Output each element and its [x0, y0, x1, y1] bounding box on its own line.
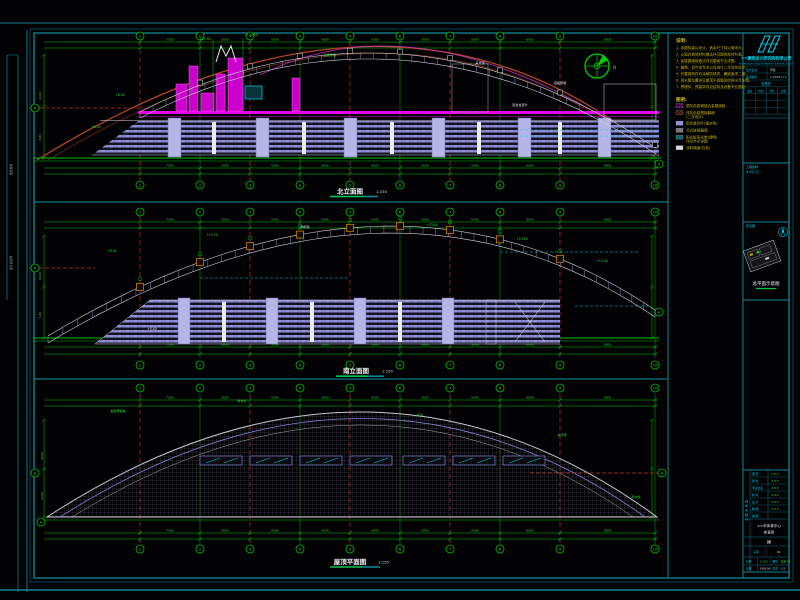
edge-label-1: 图纸目录	[9, 164, 13, 175]
grid-bubble-label: 9	[559, 183, 561, 187]
dim-text: 5000	[321, 529, 329, 533]
grid-bubble-label: 9	[559, 34, 561, 38]
truss-node-box	[498, 68, 503, 73]
tb-project-name-2: 体育场	[764, 530, 775, 535]
truss-node-box	[497, 236, 504, 243]
elevation-2-scale: 1:150	[382, 369, 394, 374]
grid-bubble-label: 7	[449, 34, 451, 38]
sig-row-label: 描 图	[752, 514, 759, 518]
sig-row-label: 制 图	[752, 507, 759, 511]
legend-label: 点式玻璃幕墙	[686, 128, 708, 133]
title-block: ××建筑设计研究院有限公司 Architectural Design & Res…	[739, 55, 794, 571]
grid-bubble-label: 6	[399, 547, 401, 551]
edge-label-2: 设计总说明	[9, 256, 13, 270]
dim-text: 5000	[321, 38, 329, 42]
grid-bubble-label: 3	[249, 547, 251, 551]
dim-text: 9500	[604, 343, 612, 347]
roof-louver-slot	[200, 456, 242, 465]
annotation-text: +19.80	[516, 237, 527, 241]
annotation-text: +8.50	[115, 93, 125, 97]
legend-label: 银灰色铝镁锰合金屋面板	[686, 103, 726, 108]
annotation-text: 采光带	[557, 432, 566, 437]
annotation-text: 天沟	[417, 412, 423, 417]
annotation-text: +23.00	[246, 33, 257, 37]
grid-bubble-label: 5	[349, 386, 351, 390]
elevation-2-title: 南立面图	[343, 366, 370, 375]
side-dim-text: 5.40	[38, 312, 42, 318]
grid-bubble-label: 10	[653, 547, 657, 551]
grid-bubble-label: 9	[559, 363, 561, 367]
company-name: ××建筑设计研究院有限公司	[741, 55, 792, 61]
roof-equipment	[176, 38, 300, 112]
sign-grid-title: 会签栏	[761, 81, 771, 86]
legend-title: 图例:	[676, 96, 687, 103]
dim-text: 7500	[166, 343, 174, 347]
grid-bubble-label: 7	[449, 210, 451, 214]
grid-bubble-label: 8	[499, 34, 501, 38]
dim-text: 9500	[604, 529, 612, 533]
dim-text: 9500	[604, 38, 612, 42]
grid-bubble-label: 3	[249, 210, 251, 214]
dim-text: 5000	[271, 164, 279, 168]
truss-node-box	[197, 259, 204, 266]
dim-text: 5000	[271, 218, 279, 222]
dim-text: 6000	[526, 396, 534, 400]
roof-plan-art	[40, 412, 660, 520]
dim-text: 5000	[471, 38, 479, 42]
grid-bubble-label: 6	[399, 183, 401, 187]
grid-bubble-label: 7	[449, 547, 451, 551]
dim-text: 5000	[421, 343, 429, 347]
roof-louver-slot	[503, 456, 545, 465]
dim-text: 5000	[371, 38, 379, 42]
cad-drawing-surface: N 11223344556677889910107500750050005000…	[0, 0, 800, 600]
truss-node-box	[298, 53, 303, 58]
grid-bubble-label: 10	[653, 34, 657, 38]
dim-text: 5000	[221, 218, 229, 222]
truss-node-box	[247, 243, 254, 250]
stamp-strip-label: 出图专用章	[744, 498, 749, 521]
truss-node-box	[447, 226, 454, 233]
grid-bubble-label: 9	[559, 547, 561, 551]
dim-text: 5000	[471, 218, 479, 222]
cad-canvas[interactable]: N 11223344556677889910107500750050005000…	[0, 0, 800, 600]
sign-grid-col: 专业	[747, 89, 753, 93]
tb-sub-value: 01	[777, 550, 781, 554]
note-item: 7. 预埋件、预留洞详见结构及设备专业图纸。	[676, 84, 749, 89]
dim-text: 5000	[471, 396, 479, 400]
side-dim-text: 33.00	[40, 452, 44, 460]
legend-swatch	[676, 135, 683, 139]
grid-bubble-label: 6	[399, 210, 401, 214]
legend-swatch	[676, 121, 683, 125]
legend-label: (二次设计)	[686, 114, 704, 119]
elevation-1-title: 北立面图	[337, 187, 364, 196]
truss-node-box	[397, 223, 404, 230]
dim-text: 7500	[166, 38, 174, 42]
sig-row-value: ×××	[771, 500, 779, 504]
dim-text: 6000	[526, 218, 534, 222]
dim-text: 5000	[421, 529, 429, 533]
dim-text: 5000	[271, 343, 279, 347]
truss-node-box	[198, 80, 203, 85]
annotation-text: +9.00	[107, 249, 117, 253]
dim-text: 5000	[371, 396, 379, 400]
sig-row-label: 设 计	[752, 500, 759, 504]
grid-bubble-label: 6	[399, 386, 401, 390]
dim-text: 7500	[166, 529, 174, 533]
grid-bubble-label: 2	[199, 386, 201, 390]
tb-date-value: 2008.06	[760, 567, 771, 571]
roof-louver-slot	[300, 456, 342, 465]
north-compass: N	[585, 54, 616, 78]
tb-stage: 建	[767, 539, 772, 546]
grid-bubble-label: 10	[653, 183, 657, 187]
grid-bubble-label: 10	[653, 386, 657, 390]
grid-bubble-label: 8	[499, 386, 501, 390]
sig-row-value: ×××	[771, 493, 779, 497]
grid-bubble-label: 9	[559, 386, 561, 390]
grid-bubble-label: 10	[653, 363, 657, 367]
grid-bubble-label: 2	[199, 547, 201, 551]
annotation-text: 铝合金百叶	[512, 102, 527, 107]
grid-bubble-label: 3	[249, 386, 251, 390]
roof-louver-slot	[250, 456, 292, 465]
note-item: 6. 雨水管位置详见屋顶平面图及给排水专业图。	[676, 78, 752, 83]
elevation-2-art	[33, 252, 659, 344]
dim-text: 5000	[421, 396, 429, 400]
legend-swatch	[676, 104, 683, 108]
annotation-text: +23.00	[426, 223, 437, 227]
elevation-1-scale: 1:150	[376, 189, 388, 194]
roof-louver-slot	[350, 456, 392, 465]
cert-value: A-2008×××	[770, 75, 787, 79]
grid-bubble-label: 6	[399, 34, 401, 38]
cert-label: 设计证书	[746, 68, 757, 72]
adjacent-sheet-labels: 图纸目录 设计总说明	[9, 164, 13, 270]
legend-label: 铝合金百叶(银灰色)	[686, 121, 718, 126]
annotation-text: +15.20	[206, 233, 217, 237]
roof-louver-slot	[403, 456, 445, 465]
grid-bubble-label: 1	[139, 210, 141, 214]
annotation-text: +6.00	[91, 125, 101, 129]
dim-text: 5000	[321, 164, 329, 168]
side-dim-text: 15.00	[38, 272, 42, 280]
grid-bubble-label: 3	[249, 363, 251, 367]
dim-text: 7500	[166, 164, 174, 168]
dim-text: 6000	[526, 38, 534, 42]
dim-text: 5000	[421, 38, 429, 42]
dim-text: 6000	[526, 164, 534, 168]
annotation-text: 雨水管	[631, 494, 640, 499]
dim-text: 5000	[371, 218, 379, 222]
sig-row-label: 审 定	[752, 472, 759, 476]
tb-number-label: 图号	[773, 560, 779, 564]
grid-bubble-label: 7	[449, 363, 451, 367]
tb-number-value: 建施-03	[781, 560, 791, 564]
annotation-text: +12.00	[596, 259, 607, 263]
sig-row-label: 专业负责	[752, 486, 763, 490]
note-item: 2. 立面外装修材料做法详见图例及材料表。	[676, 52, 745, 57]
dim-text: 9500	[604, 164, 612, 168]
tb-sub-label: 子项	[753, 550, 759, 554]
legend-swatch	[676, 146, 683, 150]
legend-label: 涂料墙面(白色)	[686, 145, 711, 150]
grid-bubble-label: 1	[139, 34, 141, 38]
tb-scale-value: 1:150	[760, 560, 768, 564]
dim-text: 5000	[371, 164, 379, 168]
grid-bubble-label: 5	[349, 34, 351, 38]
annotation-text: 采光带	[475, 60, 484, 65]
side-dim-text: 21.00	[38, 92, 42, 100]
annotation-text: 金属屋面板	[110, 408, 125, 413]
tb-sheet-label: 张次	[773, 567, 779, 571]
dim-text: 5000	[271, 38, 279, 42]
truss-node-box	[398, 49, 403, 54]
dim-text: 5000	[471, 164, 479, 168]
cert-label: 证书编号	[746, 75, 757, 79]
dim-text: 5000	[271, 529, 279, 533]
grid-bubble-label: 7	[449, 183, 451, 187]
compass-label: N	[613, 65, 616, 71]
site-label: 区位图	[746, 223, 755, 228]
side-dim-text: 12.00	[40, 492, 44, 500]
grid-bubble-label: 2	[199, 210, 201, 214]
grid-bubble-label: 2	[199, 363, 201, 367]
dim-text: 5000	[221, 164, 229, 168]
dim-text: 5000	[221, 38, 229, 42]
dim-text: 9500	[604, 218, 612, 222]
dim-text: 5000	[471, 529, 479, 533]
grid-bubble-label: 7	[449, 386, 451, 390]
grid-bubble-label: 1	[139, 183, 141, 187]
louver-band	[95, 300, 560, 344]
roof-plan-scale: 1:150	[378, 560, 390, 565]
truss-node-box	[653, 142, 658, 147]
roof-louver-slot	[453, 456, 495, 465]
grid-bubble-label: 1	[139, 363, 141, 367]
dim-text: 5000	[221, 396, 229, 400]
truss-node-box	[137, 283, 144, 290]
notes-title: 说明:	[676, 37, 687, 44]
company-name-en: Architectural Design & Research Institut…	[739, 63, 794, 66]
grid-bubble-label: 9	[559, 210, 561, 214]
grid-bubble-label: 6	[399, 363, 401, 367]
annotation-text: 屋脊线	[237, 398, 246, 403]
project-sub-label: 体育场工程	[746, 170, 759, 174]
grid-bubble-label: 8	[499, 183, 501, 187]
dim-text: 5000	[471, 343, 479, 347]
dim-text: 5000	[221, 343, 229, 347]
sig-row-value: ×××	[771, 486, 779, 490]
dim-text: 6000	[526, 529, 534, 533]
dim-text: 6000	[526, 343, 534, 347]
sig-row-label: 校 对	[752, 493, 759, 497]
sign-grid-col: 姓名	[758, 89, 764, 93]
cert-value: 甲级	[770, 68, 776, 72]
annotation-text: +5.40	[147, 327, 157, 331]
legend-swatch	[676, 111, 683, 115]
sig-row-value: ×××	[771, 479, 779, 483]
truss-node-box	[558, 90, 563, 95]
dim-text: 5000	[421, 164, 429, 168]
grid-bubble-label: 3	[249, 183, 251, 187]
tb-sheet-value: 1/3	[781, 567, 786, 571]
site-caption: 总平面示意图	[753, 280, 780, 287]
truss-node-box	[348, 48, 353, 53]
dim-text: 5000	[321, 218, 329, 222]
grid-bubble-label: 1	[139, 547, 141, 551]
grid-bubble-label: 5	[349, 547, 351, 551]
grid-bubble-label: 8	[499, 210, 501, 214]
sig-row-label: 审 核	[752, 479, 759, 483]
sign-grid-col: 日期	[781, 89, 787, 93]
magenta-band	[138, 111, 659, 114]
truss-node-box	[248, 64, 253, 69]
site-thumbnail	[743, 240, 781, 272]
truss-node-box	[297, 231, 304, 238]
annotation-text: +21.50	[199, 37, 210, 41]
side-dim-text: 8.40	[38, 134, 42, 140]
dim-text: 5000	[271, 396, 279, 400]
elevation-1-art	[33, 38, 661, 161]
dim-text: 5000	[371, 529, 379, 533]
annotation-text: 铝板幕墙	[554, 80, 566, 85]
note-item: 5. 外露钢构件均涂刷防锈漆、氟碳面漆二度。	[676, 71, 749, 76]
project-label: 工程名称	[746, 164, 758, 169]
tb-date-label: 日期	[746, 567, 752, 571]
dim-text: 5000	[321, 396, 329, 400]
legend-swatch	[676, 128, 683, 132]
grid-bubble-label: 2	[199, 183, 201, 187]
note-item: 3. 金属屋面板做法详见屋面节点详图。	[676, 58, 738, 63]
dim-text: 9500	[604, 396, 612, 400]
firm-logo	[758, 36, 780, 52]
sig-row-value: ×××	[771, 472, 779, 476]
grid-bubble-label: 8	[499, 547, 501, 551]
dim-text: 5000	[421, 218, 429, 222]
grid-bubble-label: 1	[139, 386, 141, 390]
dim-text: 5000	[321, 343, 329, 347]
truss-node-box	[448, 56, 453, 61]
dim-text: 7500	[166, 218, 174, 222]
grid-bubble-label: 8	[499, 363, 501, 367]
legend-label: 详见节点详图	[686, 139, 708, 144]
dim-text: 5000	[371, 343, 379, 347]
grid-bubble-label: 5	[349, 210, 351, 214]
tb-scale-label: 比例	[746, 560, 752, 564]
truss-node-box	[557, 255, 564, 262]
dim-text: 7500	[166, 396, 174, 400]
sign-grid-col: 签名	[769, 89, 775, 93]
site-north-icon	[779, 227, 788, 237]
grid-bubble-label: 10	[653, 210, 657, 214]
roof-plan-title: 屋顶平面图	[334, 557, 367, 566]
note-item: 1. 本图标高以米计，其余尺寸均以毫米计。	[676, 45, 745, 50]
dim-text: 5000	[221, 529, 229, 533]
sig-row-value: ×××	[771, 507, 779, 511]
tb-project-name-1: ××市体育中心	[757, 523, 781, 528]
truss-node-box	[347, 224, 354, 231]
